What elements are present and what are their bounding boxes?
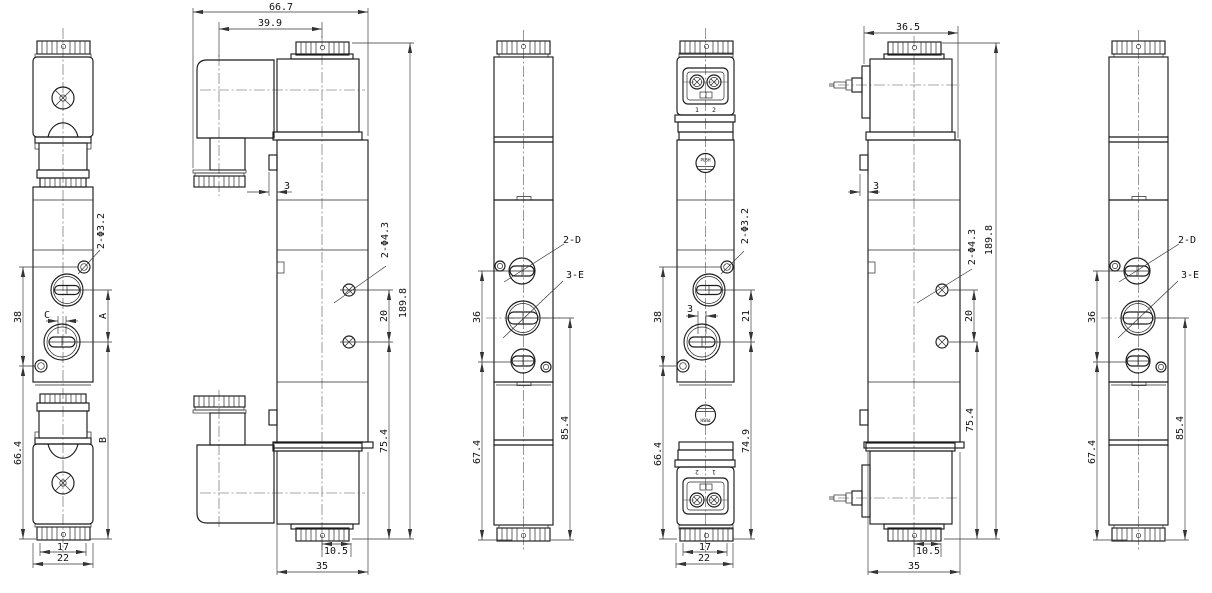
dim-port-height: 85.4: [560, 416, 571, 440]
dim-slot-width: C: [44, 310, 50, 321]
screw-hole: [936, 336, 948, 348]
dim-cap-width: 17: [57, 542, 69, 553]
drawing-canvas: 2-Φ3.2 38 C A B 66.4 17 22 66.7 39.9 3: [0, 0, 1212, 593]
port-callout-2d: 2-D: [563, 235, 581, 246]
dim-port-pitch: 36: [472, 311, 483, 323]
dim-body-depth: 35: [316, 561, 328, 572]
dim-lower-height: 67.4: [472, 440, 483, 464]
terminal-label-2: 2: [712, 106, 716, 114]
dim-body-width: 22: [698, 553, 710, 564]
dim-port-height: 85.4: [1175, 416, 1186, 440]
dim-lower-span: 74.9: [741, 429, 752, 453]
dim-port-pitch: 36: [1087, 311, 1098, 323]
dim-cap-offset: 10.5: [916, 546, 940, 557]
dim-cap-width: 17: [699, 542, 711, 553]
terminal-label-1: 1: [695, 106, 699, 114]
dim-overall-width: 36.5: [896, 22, 920, 33]
push-label-top: PUSH: [700, 158, 711, 163]
dim-hole-pitch: 38: [653, 311, 664, 323]
dim-lower-height: 66.4: [653, 442, 664, 466]
view-front-left: 2-Φ3.2 38 C A B 66.4 17 22: [13, 28, 112, 568]
dim-hole-pitch: 20: [964, 310, 975, 322]
dim-lower-height: 66.4: [13, 441, 24, 465]
view-side-right: 36.5 3 2-Φ4.3 20 189.8 75.4 10.5 35: [829, 22, 1000, 575]
dim-slot-width: 3: [687, 304, 693, 315]
dim-cap-offset: 10.5: [324, 546, 348, 557]
dim-hole-callout: 2-Φ3.2: [96, 213, 107, 249]
dim-lower-height: 67.4: [1087, 440, 1098, 464]
terminal-label-2b: 2: [695, 468, 699, 476]
dim-lower-height: 75.4: [379, 429, 390, 453]
view-back-left: 2-D 3-E 36 67.4 85.4: [472, 30, 584, 552]
dim-lower-height: 75.4: [965, 408, 976, 432]
dim-overall-height: 189.8: [398, 288, 409, 318]
view-back-right: 2-D 3-E 36 67.4 85.4: [1087, 30, 1199, 552]
dim-tab-width: 3: [284, 181, 290, 192]
mounting-hole: [35, 360, 47, 372]
view-side-left: 66.7 39.9 3 2-Φ4.3 20 189.8 75.4 10.5 35: [193, 2, 414, 575]
dim-hole-callout: 2-Φ4.3: [967, 229, 978, 265]
port-callout-3e: 3-E: [566, 270, 584, 281]
dim-overall-height: 189.8: [984, 225, 995, 255]
dim-port-pitch: A: [98, 313, 109, 319]
dim-body-depth: 35: [908, 561, 920, 572]
dim-tab-width: 3: [873, 181, 879, 192]
push-label-bottom: PUSH: [700, 418, 711, 423]
dim-port-pitch: 21: [741, 310, 752, 322]
valve-technical-drawing: 2-Φ3.2 38 C A B 66.4 17 22 66.7 39.9 3: [0, 0, 1212, 593]
dim-body-width: 22: [57, 553, 69, 564]
dim-lower-span: B: [98, 437, 109, 443]
dim-hole-callout: 2-Φ3.2: [740, 208, 751, 244]
view-front-right: 1 2 PUSH PUSH 2 1 2-Φ3.2 3 38 21 66.4 74…: [653, 28, 755, 568]
dim-coil-offset: 39.9: [258, 18, 282, 29]
port-callout-3e: 3-E: [1181, 270, 1199, 281]
mounting-hole: [721, 261, 733, 273]
dim-hole-pitch: 38: [13, 311, 24, 323]
mounting-hole: [677, 360, 689, 372]
terminal-label-1b: 1: [712, 468, 716, 476]
dim-hole-callout: 2-Φ4.3: [380, 222, 391, 258]
port-callout-2d: 2-D: [1178, 235, 1196, 246]
dim-hole-pitch: 20: [379, 310, 390, 322]
dim-overall-width: 66.7: [269, 2, 293, 13]
